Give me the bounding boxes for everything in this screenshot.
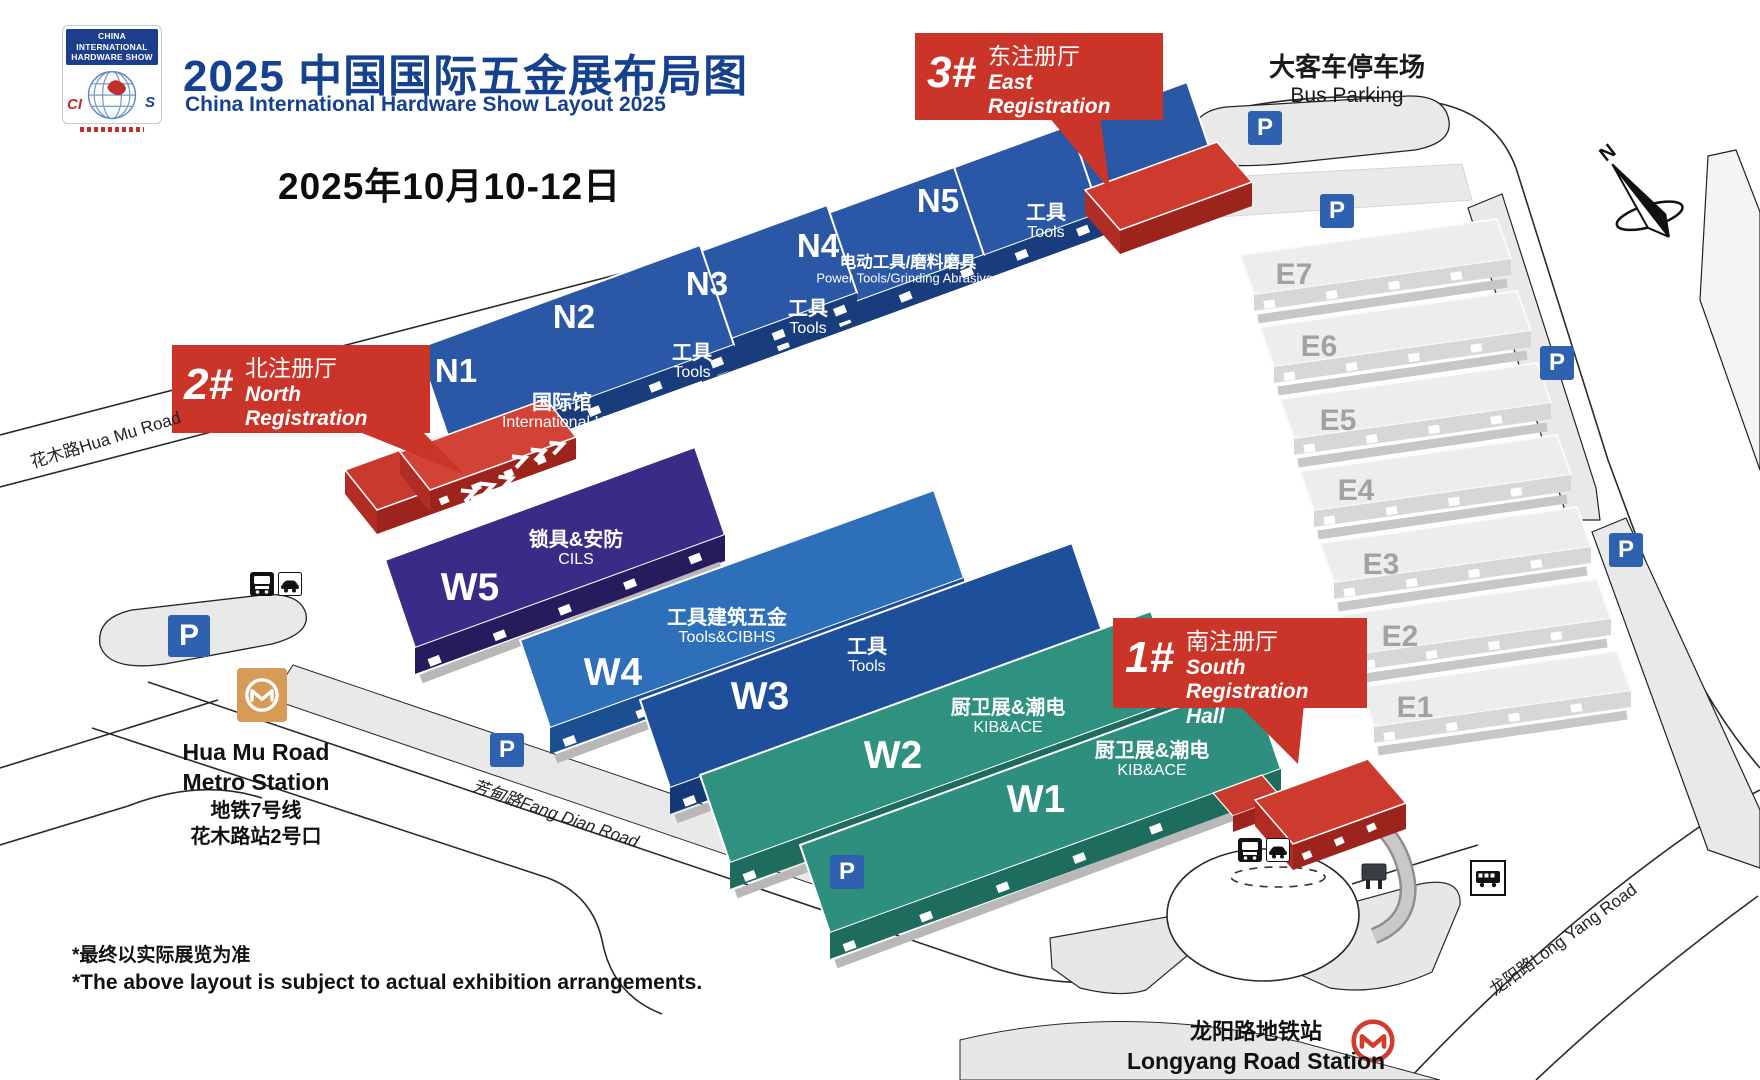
exhibition-layout-map: CHINA INTERNATIONAL HARDWARE SHOW CI S 2… — [0, 0, 1760, 1080]
hall-label-e7: E7 — [1276, 258, 1313, 292]
hall-label-w5: W5 — [441, 566, 500, 610]
parking-sign: P — [1320, 194, 1354, 228]
hall-sector-n5: 工具Tools — [1026, 202, 1066, 242]
hall-label-n1: N1 — [435, 352, 477, 390]
compass-icon — [1582, 144, 1695, 260]
hall-label-w2: W2 — [864, 734, 923, 778]
hall-label-e2: E2 — [1382, 620, 1419, 654]
parking-sign: P — [1540, 346, 1574, 380]
callout-zh: 东注册厅 — [988, 43, 1151, 71]
parking-sign: P — [1609, 533, 1643, 567]
map-graphics — [0, 0, 1760, 1080]
hall-sector-n4: 电动工具/磨料磨具Power Tools/Grinding Abrasives — [816, 253, 999, 286]
logo-acronym-ci: CI — [67, 96, 82, 113]
show-logo: CHINA INTERNATIONAL HARDWARE SHOW CI S — [62, 25, 162, 124]
callout-number: 1# — [1125, 636, 1174, 680]
metro-logo-huamu — [237, 668, 287, 722]
logo-globe-icon: CI S — [66, 65, 158, 127]
callout-east-registration: 3# 东注册厅 East Registration Hall — [915, 33, 1163, 120]
hall-sector-w5: 锁具&安防CILS — [529, 529, 623, 569]
car-icon — [278, 572, 302, 596]
footnote: *最终以实际展览为准 *The above layout is subject … — [72, 944, 702, 996]
hall-sector-n2: 工具Tools — [672, 342, 712, 382]
hall-label-w3: W3 — [731, 675, 790, 719]
parking-sign: P — [830, 855, 864, 889]
bus-parking-label: 大客车停车场 Bus Parking — [1269, 52, 1425, 108]
logo-tagline-mark — [80, 127, 144, 132]
bus-icon — [1238, 838, 1262, 862]
hall-label-e6: E6 — [1301, 330, 1338, 364]
hall-label-w1: W1 — [1007, 778, 1066, 822]
callout-en: North Registration — [245, 383, 418, 433]
hall-label-w4: W4 — [584, 651, 643, 695]
longyang-station-label: 龙阳路地铁站 Longyang Road Station — [1127, 1018, 1385, 1076]
parking-sign: P — [490, 733, 524, 767]
hall-sector-w4: 工具建筑五金Tools&CIBHS — [667, 607, 787, 647]
callout-south-registration: 1# 南注册厅 South Registration Hall — [1113, 618, 1367, 708]
bus-stop-icon — [1470, 860, 1506, 896]
callout-number: 3# — [927, 51, 976, 95]
roundabout — [1167, 849, 1359, 981]
hall-sector-w3: 工具Tools — [847, 636, 887, 676]
page-subtitle: China International Hardware Show Layout… — [185, 93, 666, 117]
callout-en2: Hall — [245, 432, 418, 457]
callout-north-registration: 2# 北注册厅 North Registration Hall — [172, 345, 430, 433]
bus-icon — [250, 572, 274, 596]
callout-zh: 北注册厅 — [245, 355, 418, 383]
hall-label-e4: E4 — [1338, 474, 1375, 508]
hall-sector-n1: 国际馆International Hall — [502, 392, 622, 432]
huamu-station-label: Hua Mu Road Metro Station 地铁7号线 花木路站2号口 — [183, 738, 330, 850]
car-icon — [1266, 838, 1290, 862]
callout-en2: Hall — [1186, 705, 1355, 730]
hall-sector-w2: 厨卫展&潮电KIB&ACE — [951, 697, 1065, 737]
parking-sign: P — [168, 615, 210, 657]
hall-sector-n3: 工具Tools — [788, 298, 828, 338]
hall-label-e3: E3 — [1363, 548, 1400, 582]
hall-label-e1: E1 — [1397, 691, 1434, 725]
parking-sign: P — [1248, 111, 1282, 145]
show-dates: 2025年10月10-12日 — [278, 156, 621, 210]
logo-acronym-s: S — [145, 94, 155, 111]
callout-en: East Registration — [988, 71, 1151, 121]
hall-label-n2: N2 — [553, 298, 595, 336]
hall-label-n3: N3 — [686, 265, 728, 303]
callout-number: 2# — [184, 363, 233, 407]
hall-label-n5: N5 — [917, 182, 959, 220]
callout-en2: Hall — [988, 120, 1151, 145]
hall-sector-w1: 厨卫展&潮电KIB&ACE — [1095, 740, 1209, 780]
station-entrance — [1362, 864, 1386, 889]
logo-title: CHINA INTERNATIONAL HARDWARE SHOW — [66, 29, 158, 65]
callout-en: South Registration — [1186, 656, 1355, 706]
callout-zh: 南注册厅 — [1186, 628, 1355, 656]
hall-label-e5: E5 — [1320, 404, 1357, 438]
